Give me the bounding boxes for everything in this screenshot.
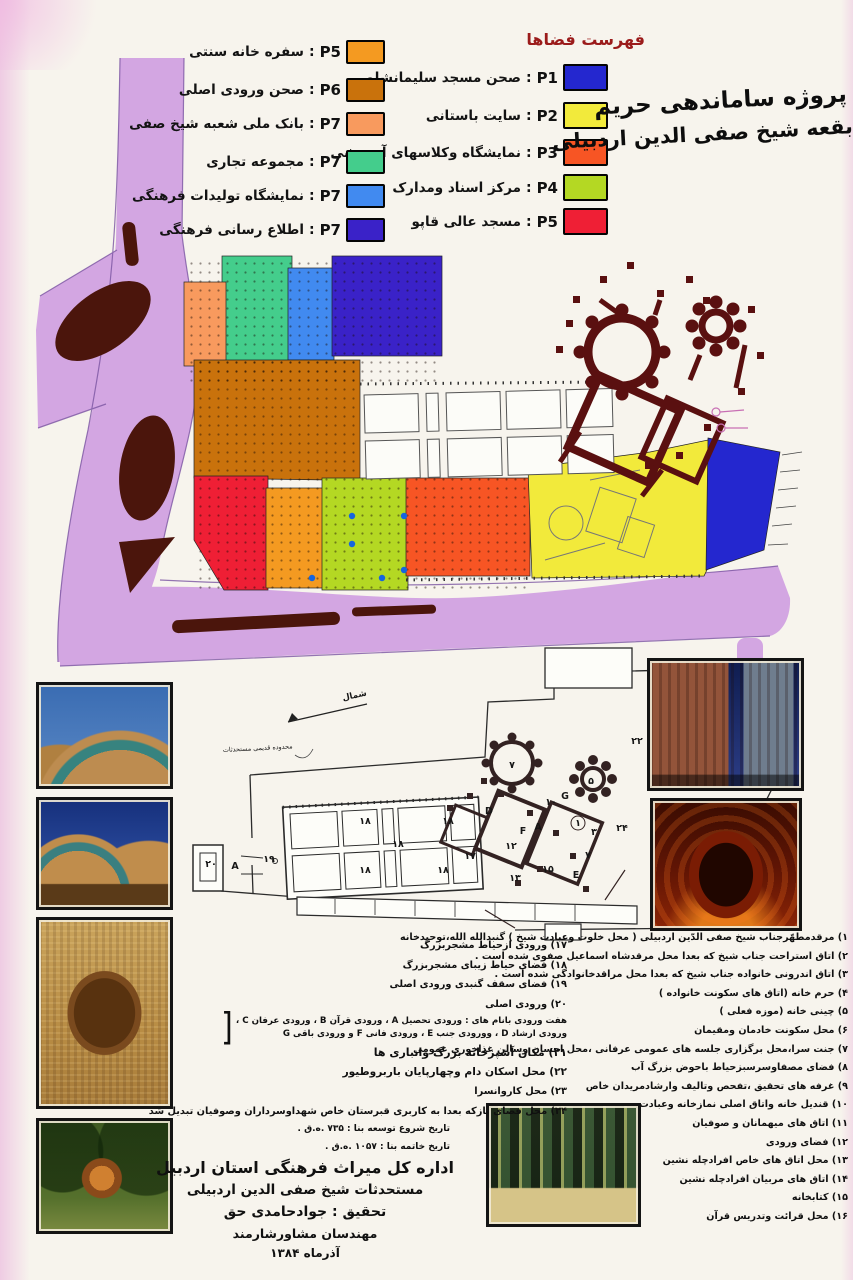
note-item: ۲۲) محل اسکان دام وچهارپایان باربروطیور: [257, 1063, 567, 1083]
legend-item-p6: P6 : صحن ورودی اصلی: [179, 78, 385, 102]
outbuilding: [545, 648, 632, 688]
note-item: ۲۰) ورودی اصلی: [257, 995, 567, 1015]
legend-item-p2: P2 : سایت باستانی: [426, 102, 608, 129]
photo-tiled-dome: [36, 682, 173, 789]
plan-label: ۲۴: [616, 823, 628, 834]
note-item: ۱۲) فضای ورودی: [548, 1134, 848, 1153]
legend-code: P7: [320, 187, 341, 205]
legend-colon: :: [309, 44, 315, 60]
legend-colon: :: [526, 145, 532, 161]
plan-label: ۲۲: [631, 736, 643, 747]
legend-item-p1: P1 : صحن مسجد سلیمانشاه: [367, 64, 608, 91]
credit-consultant: مهندسان مشاورشارمند: [150, 1226, 460, 1241]
legend-label: مسجد عالی قاپو: [411, 214, 520, 230]
legend-item-p7-commercial: P7 : مجموعه تجاری: [206, 150, 385, 174]
note-item: ۳) اتاق اندرونی خانواده جناب شیخ که بعدا…: [548, 966, 848, 985]
entrances-bracket-note: هفت ورودی بانام های : ورودی تحصیل A ، ور…: [257, 1015, 567, 1041]
plan-label: ۲۰: [205, 859, 217, 870]
plan-label: ۱۸: [359, 816, 371, 827]
legend-code: P7: [320, 153, 341, 171]
legend-code: P7: [320, 115, 341, 133]
credits-block: تاریخ شروع توسعه بنا : ۷۳۵ .ه.ق . تاریخ …: [150, 1118, 460, 1278]
legend-code: P6: [320, 81, 341, 99]
legend-label: مرکز اسناد ومدارک: [392, 180, 521, 196]
legend-swatch-p5-right: [563, 208, 608, 235]
legend-swatch-p1: [563, 64, 608, 91]
note-item: ۱۹) فضای سقف گنبدی ورودی اصلی: [257, 975, 567, 995]
plan-label: ۷: [509, 760, 515, 771]
old-boundary-label: محدوده قدیمی مستحدثات: [223, 742, 293, 754]
legend-swatch-products: [346, 184, 385, 208]
legend-label: بانک ملی شعبه شیخ صفی: [129, 116, 304, 132]
legend-label: سفره خانه سنتی: [189, 44, 304, 60]
notes-list-left: ۱۷) ورودی ازحیاط مشجربزرگ ۱۸) فضای حیاط …: [257, 936, 567, 1121]
plan-label: E: [573, 870, 580, 881]
note-item: ۹) غرفه های تحقیق ،تفحص وتالیف وارشادمری…: [548, 1078, 848, 1097]
legend-swatch-commercial: [346, 150, 385, 174]
legend-label: سایت باستانی: [426, 108, 521, 124]
plan-label: G: [561, 791, 569, 802]
bracket-glyph: [: [221, 1012, 233, 1045]
legend-colon: :: [526, 214, 532, 230]
credit-organization: اداره کل میراث فرهنگی استان اردبیل: [150, 1158, 460, 1177]
legend-colon: :: [309, 116, 315, 132]
legend-label: نمایشگاه تولیدات فرهنگی: [132, 188, 304, 204]
legend-code: P2: [537, 107, 558, 125]
scanned-document-page: فهرست فضاها P1 : صحن مسجد سلیمانشاه P2 :…: [0, 0, 853, 1280]
legend-label: صحن ورودی اصلی: [179, 82, 304, 98]
legend-code: P4: [537, 179, 558, 197]
legend-swatch-info: [346, 218, 385, 242]
plan-label: A: [231, 861, 239, 872]
plan-label: ۱۳: [509, 873, 521, 884]
legend-item-p5-right: P5 : مسجد عالی قاپو: [411, 208, 608, 235]
bracket-line: ورودی ارشاد D ، وورودی جنب E ، ورودی فان…: [236, 1028, 567, 1041]
credit-subject: مستحدثات شیخ صفی الدین اردبیلی: [150, 1182, 460, 1198]
legend-label: اطلاع رسانی فرهنگی: [159, 222, 304, 238]
note-item: ۲۱) مکان آشپزخانه بزرگ وانباری ها: [257, 1043, 567, 1063]
credit-researcher: تحقیق : جوادحامدی حق: [150, 1204, 460, 1220]
plan-label: ۱۸: [392, 839, 404, 850]
photo-chinikhaneh-interior: [650, 798, 802, 931]
legend-item-p7-info: P7 : اطلاع رسانی فرهنگی: [159, 218, 385, 242]
note-item: ۱۸) فضای حیاط زیبای مشجربزرگ: [257, 956, 567, 976]
legend-code: P5: [537, 213, 558, 231]
photo-twin-domes: [36, 797, 173, 910]
legend-colon: :: [309, 82, 315, 98]
legend-colon: :: [526, 70, 532, 86]
credit-end-date: تاریخ خاتمه بنا : ۱۰۵۷ .ه.ق .: [325, 1142, 450, 1152]
notes-list-right: ۱) مرقدمطهّرجناب شیخ صفی الدّین اردبیلی …: [548, 929, 848, 1227]
legend-colon: :: [526, 108, 532, 124]
plan-label: ۱۸: [442, 816, 454, 827]
note-item: ۸) فضای مصفاوسرسبزحیاط باحوض بزرگ آب: [548, 1059, 848, 1078]
plan-label: ۱۵: [542, 864, 554, 875]
note-item: ۱۰) قندیل خانه واتاق اصلی نمازخانه وعباد…: [548, 1096, 848, 1115]
plan-label: ۱: [575, 818, 581, 829]
legend-swatch-restaurant: [346, 40, 385, 64]
legend-colon: :: [526, 180, 532, 196]
legend-colon: :: [309, 222, 315, 238]
note-item: ۴) حرم خانه (اتاق های سکونت خانواده ): [548, 985, 848, 1004]
credit-start-date: تاریخ شروع توسعه بنا : ۷۳۵ .ه.ق .: [298, 1124, 450, 1134]
plan-label: ۷: [585, 850, 591, 861]
legend-label: مجموعه تجاری: [206, 154, 304, 170]
legend-item-p4: P4 : مرکز اسناد ومدارک: [392, 174, 608, 201]
zone-soleymanshah-court: [706, 438, 780, 570]
credit-date: آذرماه ۱۳۸۴: [150, 1246, 460, 1260]
note-item: ۱۶) محل قرائت وتدریس قرآن: [548, 1208, 848, 1227]
note-item: ۶) محل سکونت خادمان ومقیمان: [548, 1022, 848, 1041]
legend-swatch-entrance-court: [346, 78, 385, 102]
plan-label: ۵: [588, 776, 594, 787]
legend-code: P1: [537, 69, 558, 87]
plan-label: ۱۹: [263, 854, 275, 865]
legend-item-p7-bank: P7 : بانک ملی شعبه شیخ صفی: [129, 112, 385, 136]
plan-label: ۱۸: [359, 865, 371, 876]
north-arrow: شمال: [288, 689, 368, 722]
plan-label: ۱۸: [437, 865, 449, 876]
plan-label: F: [520, 826, 527, 837]
note-item: ۱۵) کتابخانه: [548, 1189, 848, 1208]
note-item: ۱) مرقدمطهّرجناب شیخ صفی الدّین اردبیلی …: [548, 929, 848, 948]
legend-label: صحن مسجد سلیمانشاه: [367, 70, 521, 86]
photo-muqarnas-iwan: [36, 917, 173, 1109]
north-label: شمال: [342, 689, 368, 704]
legend-code: P5: [320, 43, 341, 61]
legend-swatch-p4: [563, 174, 608, 201]
legend-colon: :: [309, 188, 315, 204]
note-item: ۱۴) اتاق های مربیان افرادچله نشین: [548, 1171, 848, 1190]
photo-brick-towers: [647, 658, 804, 791]
legend-item-p7-products: P7 : نمایشگاه تولیدات فرهنگی: [132, 184, 385, 208]
note-item: ۱۱) اتاق های میهمانان و صوفیان: [548, 1115, 848, 1134]
plan-label: ۳: [591, 827, 597, 838]
plan-label: ۱۷: [464, 851, 476, 862]
note-item: ۲۳) محل کاروانسرا: [257, 1082, 567, 1102]
note-item: ۵) چینی خانه (موزه فعلی ): [548, 1003, 848, 1022]
legend-header: فهرست فضاها: [526, 30, 645, 49]
legend-colon: :: [309, 154, 315, 170]
note-item: ۱۷) ورودی ازحیاط مشجربزرگ: [257, 936, 567, 956]
plan-label: ۱۰: [545, 797, 557, 808]
plan-label: ۱۲: [505, 841, 517, 852]
legend-swatch-bank: [346, 112, 385, 136]
plan-label: D: [485, 806, 493, 817]
plan-label: A: [534, 822, 542, 833]
legend-code: P7: [320, 221, 341, 239]
bracket-line: هفت ورودی بانام های : ورودی تحصیل A ، ور…: [236, 1015, 567, 1028]
note-item: ۲) اتاق استراحت جناب شیخ که بعدا محل مرق…: [548, 948, 848, 967]
note-item: ۱۳) محل اتاق های خاص افرادچله نشین: [548, 1152, 848, 1171]
legend-item-p5-left: P5 : سفره خانه سنتی: [189, 40, 385, 64]
note-item: ۷) جنت سرا،محل برگزاری جلسه های عمومی عر…: [548, 1041, 848, 1060]
